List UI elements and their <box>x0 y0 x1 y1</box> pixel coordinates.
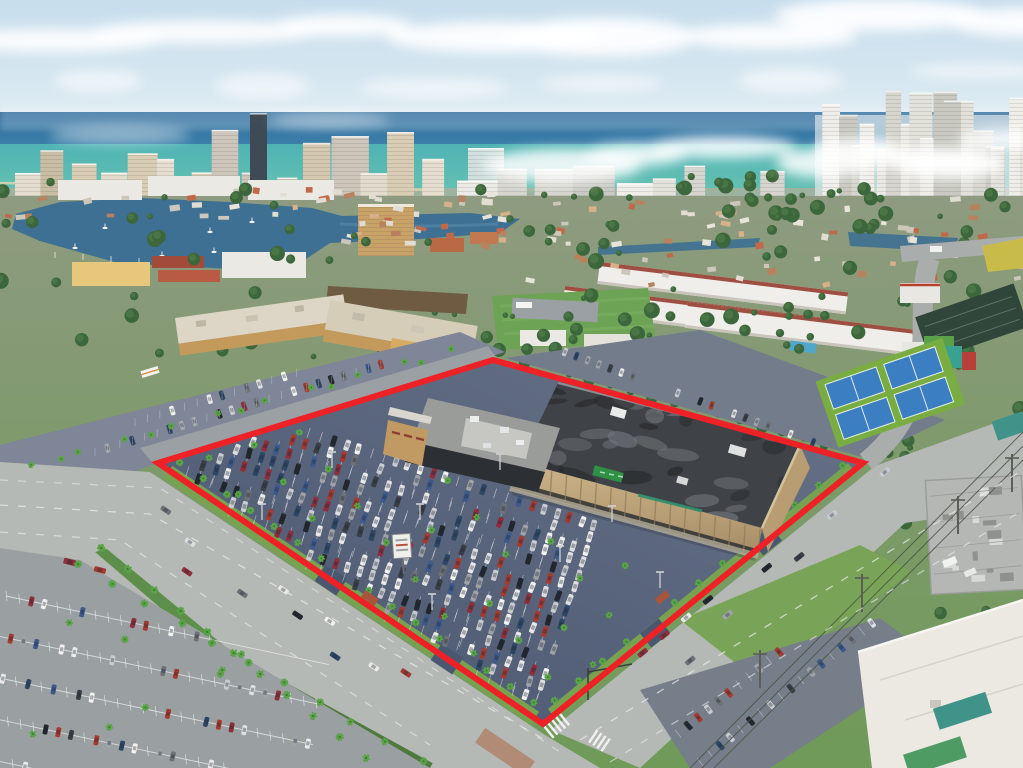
house-roof <box>200 214 209 219</box>
house-roof <box>359 221 366 227</box>
house-roof <box>566 242 571 246</box>
house-roof <box>970 204 980 210</box>
building-block <box>58 180 142 200</box>
house-roof <box>122 196 130 200</box>
house-roof <box>292 204 298 210</box>
cloud <box>50 126 190 144</box>
cloud <box>738 68 842 93</box>
house-roof <box>15 214 25 220</box>
house-roof <box>950 196 961 202</box>
house-roof <box>739 231 745 237</box>
house-roof <box>707 266 716 272</box>
house-roof <box>414 211 419 217</box>
house-roof <box>192 202 202 208</box>
house-roof <box>280 193 287 197</box>
house-roof <box>764 264 769 268</box>
house-roof <box>561 222 568 226</box>
cloud <box>216 73 310 99</box>
house-roof <box>857 271 865 277</box>
hotel-tower <box>358 204 414 256</box>
house-roof <box>702 239 711 246</box>
building-block <box>148 176 240 196</box>
house-roof <box>664 238 673 243</box>
house-roof <box>369 194 376 199</box>
house-roof <box>379 221 386 227</box>
building-block <box>430 238 464 252</box>
cloud <box>54 70 142 92</box>
aerial-photo <box>0 0 1023 768</box>
house-roof <box>941 232 948 237</box>
substation <box>925 476 1023 595</box>
house-roof <box>499 237 506 242</box>
house-roof <box>829 230 837 234</box>
house-roof <box>441 224 448 230</box>
house-roof <box>681 210 687 215</box>
house-roof <box>482 199 493 206</box>
house-roof <box>821 233 829 241</box>
house-roof <box>253 187 260 194</box>
aerial-photo-stage <box>0 0 1023 768</box>
house-roof <box>272 212 278 217</box>
house-roof <box>688 212 695 216</box>
house-roof <box>814 256 820 261</box>
house-roof <box>890 261 896 266</box>
house-roof <box>306 187 313 193</box>
house-roof <box>844 205 850 212</box>
house-roof <box>909 237 917 244</box>
house-roof <box>107 214 114 218</box>
house-roof <box>218 216 229 220</box>
house-roof <box>500 231 507 236</box>
cloud <box>270 112 390 128</box>
cloud <box>648 136 796 158</box>
house-roof <box>332 189 341 194</box>
cloud <box>506 18 696 56</box>
cloud <box>360 78 509 98</box>
house-roof <box>458 195 465 202</box>
house-roof <box>370 214 379 218</box>
house-roof <box>881 221 887 225</box>
house-roof <box>589 206 597 212</box>
house-roof <box>755 242 764 249</box>
cloud <box>815 138 905 162</box>
cloud <box>895 151 1005 179</box>
house-roof <box>487 192 495 197</box>
house-roof <box>405 241 416 246</box>
cloud <box>540 76 663 92</box>
building-block <box>72 262 150 286</box>
house-roof <box>391 230 401 236</box>
building-block <box>158 270 220 282</box>
house-roof <box>642 257 648 262</box>
